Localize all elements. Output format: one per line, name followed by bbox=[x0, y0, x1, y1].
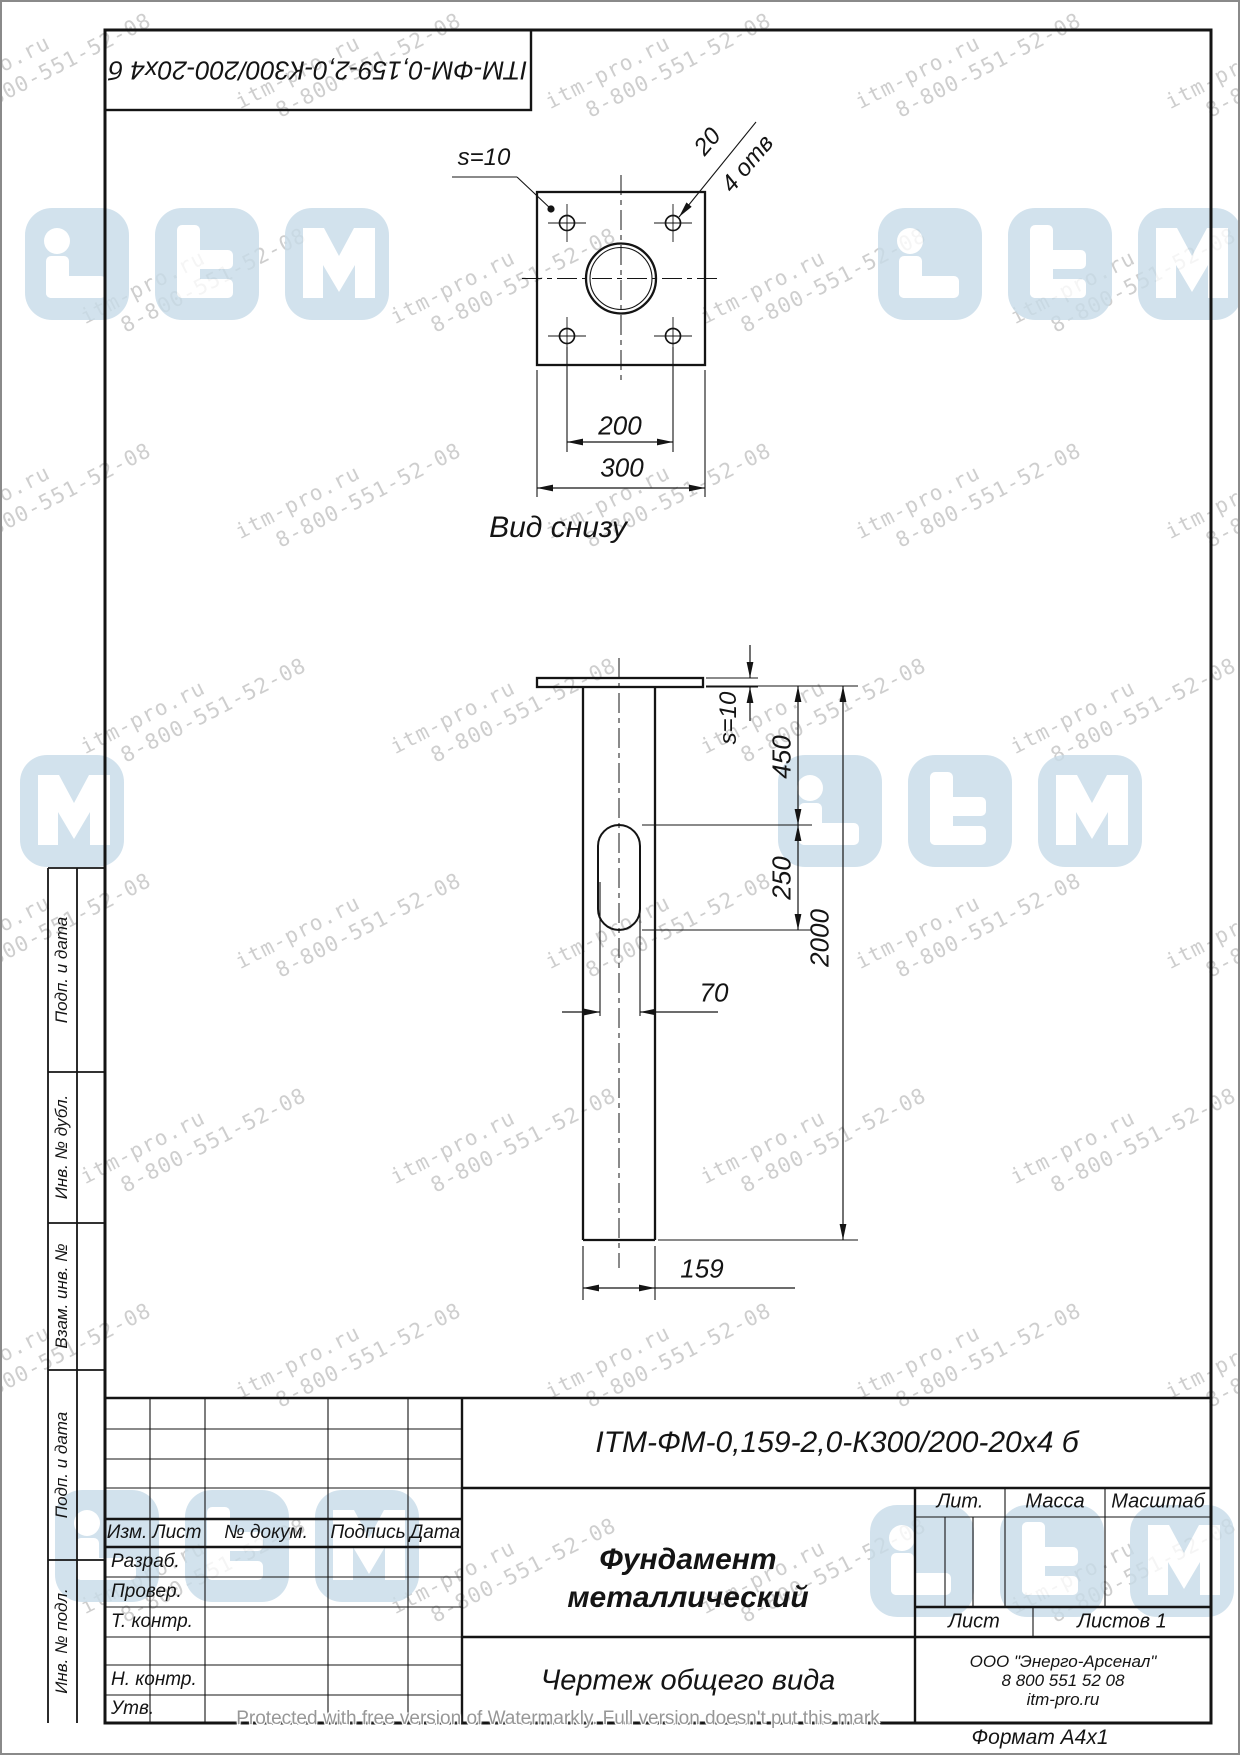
row-razrab: Разраб. bbox=[111, 1551, 180, 1573]
header-izm: Изм. bbox=[107, 1522, 148, 1544]
dim-70-label: 70 bbox=[700, 978, 729, 1009]
drawing-sheet: itm-pro.ru8-800-551-52-08itm-pro.ru8-800… bbox=[0, 0, 1240, 1755]
header-list: Лист bbox=[153, 1522, 202, 1544]
header-doc-num: № докум. bbox=[224, 1522, 308, 1544]
dim-250-label: 250 bbox=[767, 856, 798, 899]
dim-159-label: 159 bbox=[680, 1254, 723, 1285]
dim-450-label: 450 bbox=[767, 735, 798, 778]
part-title-line2: металлический bbox=[567, 1581, 808, 1615]
header-scale: Масштаб bbox=[1111, 1491, 1204, 1514]
sheet-label: Лист bbox=[948, 1611, 1000, 1634]
row-n-kontr: Н. контр. bbox=[111, 1669, 197, 1691]
margin-label-podp-data-1: Подп. и дата bbox=[52, 917, 72, 1023]
title-block-designation: ITM-ФМ-0,159-2,0-К300/200-20x4 б bbox=[595, 1426, 1078, 1460]
header-mass: Масса bbox=[1025, 1491, 1084, 1514]
sheets-label: Листов 1 bbox=[1077, 1611, 1167, 1634]
format-label: Формат А4х1 bbox=[971, 1726, 1108, 1750]
row-utv: Утв. bbox=[111, 1698, 154, 1720]
holes-diameter-label: 20 bbox=[689, 123, 728, 161]
row-t-kontr: Т. контр. bbox=[111, 1611, 193, 1633]
margin-label-inv-dubl: Инв. № дубл. bbox=[52, 1095, 72, 1200]
dim-200-label: 200 bbox=[598, 411, 641, 442]
bottom-view-title: Вид снизу bbox=[489, 511, 627, 545]
row-prover: Провер. bbox=[111, 1581, 182, 1603]
margin-label-vzam-inv: Взам. инв. № bbox=[52, 1243, 72, 1348]
plate-thickness-label: s=10 bbox=[458, 144, 511, 172]
company-phone: 8 800 551 52 08 bbox=[1002, 1671, 1125, 1691]
labels-layer: ITM-ФМ-0,159-2,0-К300/200-20x4 б s=10 20… bbox=[0, 0, 1240, 1755]
company-site: itm-pro.ru bbox=[1027, 1690, 1100, 1710]
dim-2000-label: 2000 bbox=[805, 909, 836, 967]
company-name: ООО "Энерго-Арсенал" bbox=[970, 1652, 1157, 1672]
header-date: Дата bbox=[410, 1522, 460, 1544]
header-signature: Подпись bbox=[330, 1522, 405, 1544]
margin-label-inv-podl: Инв. № подл. bbox=[52, 1588, 72, 1694]
dim-300-label: 300 bbox=[600, 453, 643, 484]
top-designation: ITM-ФМ-0,159-2,0-К300/200-20x4 б bbox=[109, 55, 528, 86]
watermarkly-notice: Protected with free version of Watermark… bbox=[236, 1708, 880, 1730]
part-title-line1: Фундамент bbox=[599, 1543, 776, 1577]
header-lit: Лит. bbox=[937, 1491, 984, 1514]
side-thickness-label: s=10 bbox=[715, 692, 743, 745]
doc-type-label: Чертеж общего вида bbox=[541, 1665, 836, 1698]
margin-label-podp-data-2: Подп. и дата bbox=[52, 1412, 72, 1518]
